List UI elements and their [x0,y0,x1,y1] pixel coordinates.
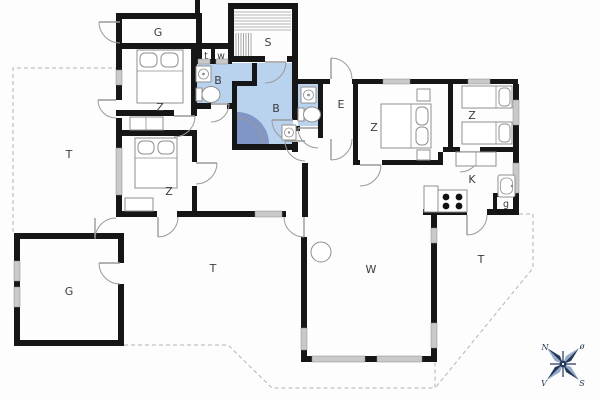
room-label-bedroom-4: Z [468,109,476,122]
door-bath-small [211,104,229,122]
window [301,328,307,350]
room-label-terrace-right: T [477,253,485,266]
terrace-left-outline [13,68,116,232]
room-label-bath-large: B [272,102,280,115]
door-bedroom3 [360,165,381,186]
stove-icon [438,190,467,212]
sink-icon [498,175,515,197]
door-entrance [331,58,352,79]
window [431,228,437,243]
floor-plan-drawing: G Z Z t w S B B E Z Z K g W G T T T N ø … [0,0,600,400]
door-entrance-hall [331,139,352,160]
window [383,79,410,84]
floor-plan: G Z Z t w S B B E Z Z K g W G T T T N ø … [0,0,600,400]
sauna-bench-hatching [234,12,291,56]
window [14,287,20,307]
room-label-bedroom-3: Z [370,121,378,134]
room-label-garage: G [65,285,74,298]
room-label-bedroom-1: Z [156,101,164,114]
door-living-terrace [284,217,304,237]
bed-double-icon [137,50,183,103]
room-label-sauna: S [265,36,272,49]
walls [14,0,519,362]
room-label-storage-top: G [154,26,163,39]
washbasin-icon [196,66,211,82]
window [513,100,519,125]
window [116,148,122,195]
wardrobe-icon [130,117,163,130]
window [468,79,490,84]
window [255,211,282,217]
room-label-toilet-closet: t [204,51,208,62]
washing-machine-icon [301,87,316,103]
terrace-middle-outline [124,345,435,388]
kitchen-counter [424,186,438,212]
compass-east-label: ø [579,342,585,351]
room-label-living-room: W [366,263,377,276]
window [312,356,365,362]
toilet-icon [298,107,321,122]
window [431,323,437,348]
bed-single-icon [462,86,512,108]
compass-south-label: S [579,379,585,388]
window [14,261,20,281]
door-kitchen-terrace [467,215,487,235]
room-label-kitchen: K [468,173,476,186]
compass-north-label: N [541,343,550,352]
compass-west-label: V [541,379,548,388]
window [116,70,122,85]
bed-single-icon [462,122,512,144]
room-label-terrace-middle: T [209,262,217,275]
room-label-terrace-left: T [65,148,73,161]
door-garage [99,263,120,284]
door-wc [298,128,318,148]
room-label-bedroom-2: Z [165,185,173,198]
room-label-bath-small: B [214,74,222,87]
toilet-icon [196,87,220,103]
wood-stove-icon [311,242,331,262]
bed-double-icon [135,138,177,188]
bed-double-icon [381,89,431,160]
door-bedroom1-terrace [98,100,116,118]
compass-rose: N ø S V [541,342,586,388]
door-hall-terrace-middle [158,217,178,237]
door-bedroom2 [196,163,217,184]
terrace-right-outline [436,214,533,387]
kitchen-counter [456,152,496,166]
window [377,356,422,362]
dresser-icon [125,198,153,211]
room-label-pantry: g [503,199,509,210]
room-label-wash-closet: w [217,51,225,62]
room-label-entrance: E [338,98,345,111]
washing-machine-icon [282,125,296,140]
